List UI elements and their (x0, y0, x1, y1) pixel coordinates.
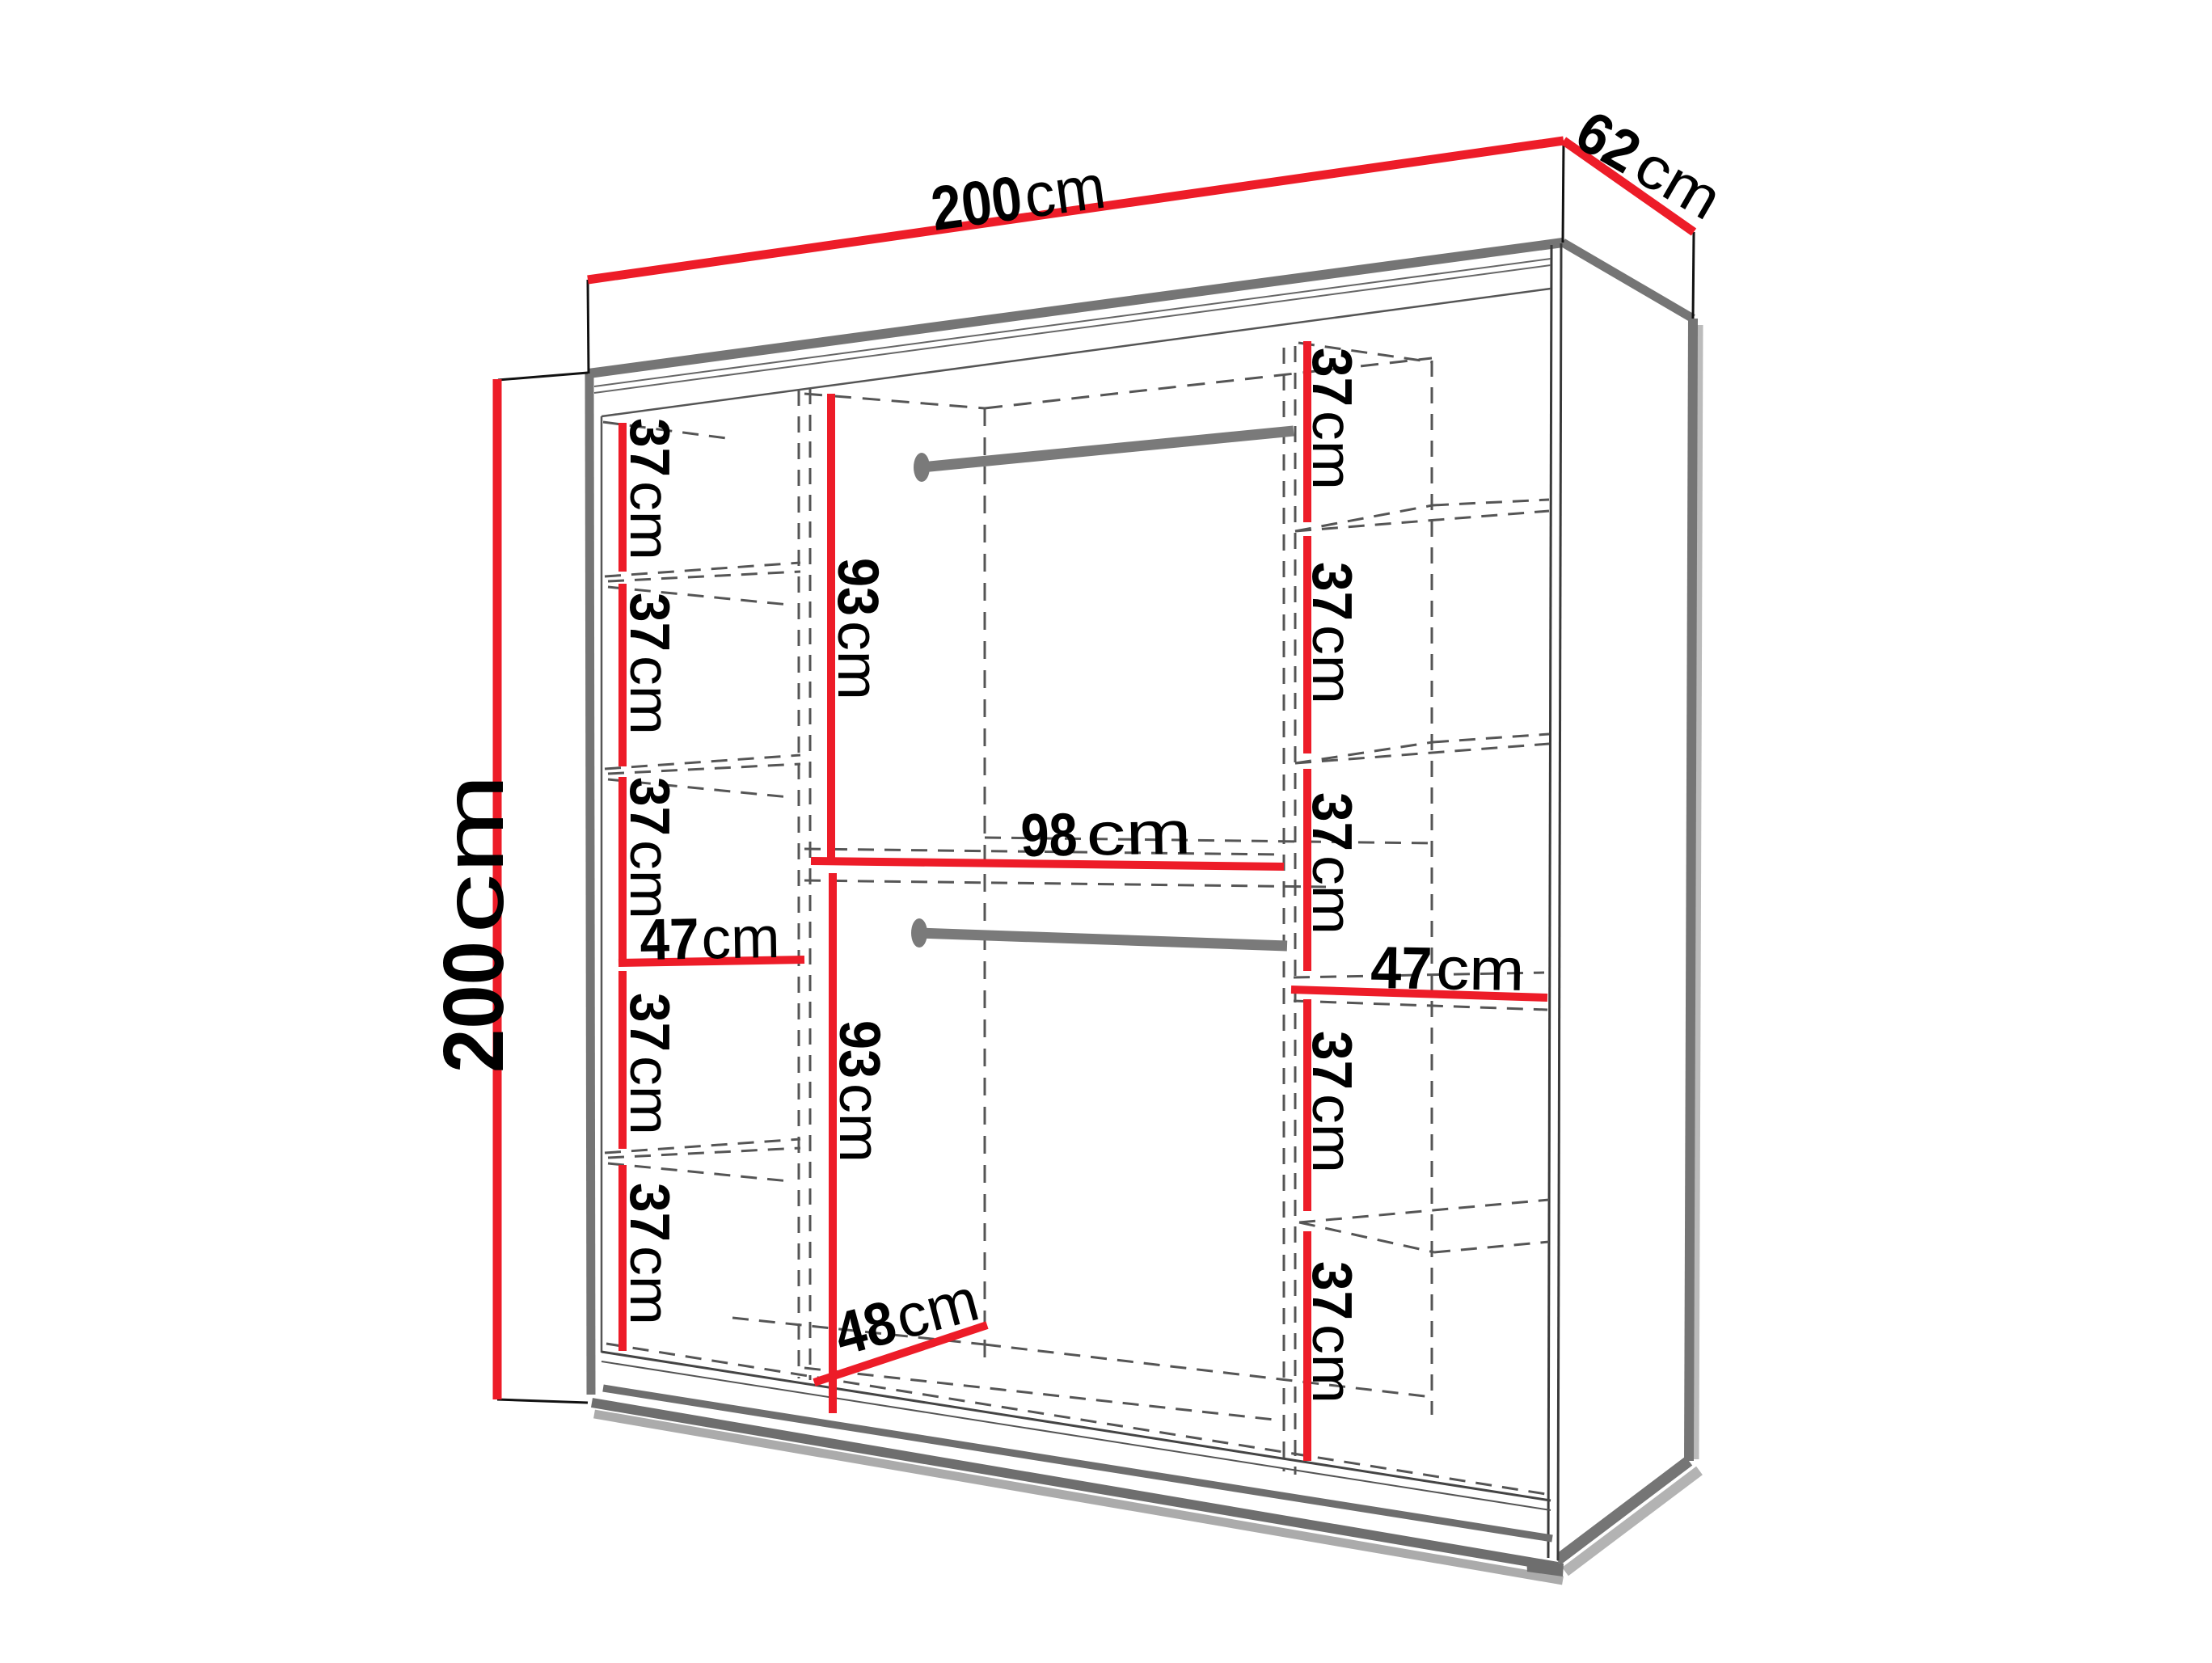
svg-text:cm: cm (618, 1246, 682, 1325)
svg-text:cm: cm (1086, 798, 1192, 867)
svg-text:cm: cm (1301, 411, 1364, 490)
svg-text:37: 37 (618, 418, 682, 477)
svg-text:37: 37 (1301, 348, 1364, 407)
svg-text:37: 37 (1301, 1261, 1364, 1320)
svg-text:cm: cm (1020, 152, 1110, 232)
svg-text:37: 37 (1301, 562, 1364, 621)
svg-text:cm: cm (825, 621, 889, 700)
svg-text:37: 37 (1301, 1031, 1364, 1090)
svg-text:37: 37 (618, 1183, 682, 1242)
svg-text:cm: cm (701, 905, 780, 972)
svg-text:200: 200 (426, 941, 521, 1073)
svg-text:47: 47 (640, 907, 699, 973)
svg-text:cm: cm (618, 481, 682, 560)
svg-text:cm: cm (1301, 1324, 1364, 1403)
svg-text:37: 37 (618, 593, 682, 652)
svg-text:93: 93 (825, 558, 889, 616)
svg-text:37: 37 (618, 993, 682, 1052)
svg-text:cm: cm (1301, 1094, 1364, 1173)
svg-text:47: 47 (1370, 934, 1433, 1002)
svg-text:cm: cm (618, 656, 682, 735)
svg-text:cm: cm (426, 774, 521, 934)
svg-text:37: 37 (1301, 792, 1364, 851)
svg-text:37: 37 (618, 777, 682, 836)
svg-text:cm: cm (1436, 935, 1525, 1003)
svg-text:200: 200 (927, 163, 1027, 244)
svg-text:cm: cm (1301, 855, 1364, 935)
svg-text:93: 93 (827, 1020, 891, 1078)
svg-text:98: 98 (1020, 800, 1078, 869)
svg-text:cm: cm (827, 1083, 891, 1163)
svg-text:cm: cm (1301, 625, 1364, 704)
svg-text:cm: cm (618, 1056, 682, 1135)
